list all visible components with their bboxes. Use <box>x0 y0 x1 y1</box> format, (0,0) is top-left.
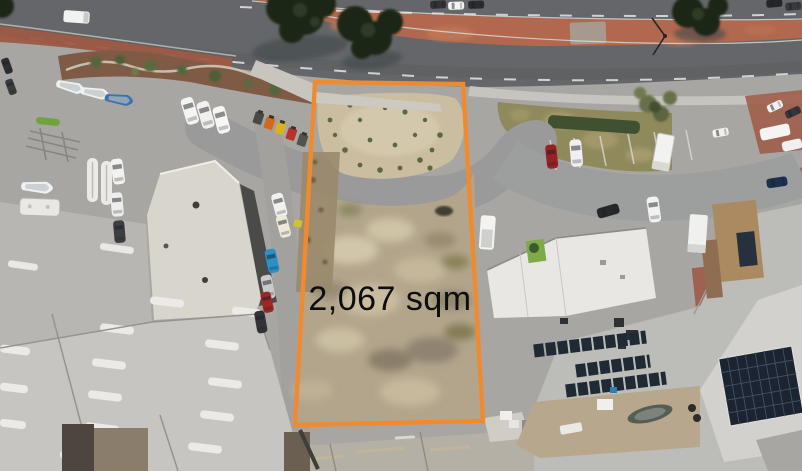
vehicle <box>430 0 446 9</box>
dark-shed <box>284 432 310 471</box>
white-truck <box>687 214 708 253</box>
area-label: 2,067 sqm <box>308 280 471 318</box>
loading-bay-gap <box>62 424 148 471</box>
vehicle <box>785 2 802 11</box>
vehicle <box>766 0 783 8</box>
aerial-photo: 2,067 sqm <box>0 0 802 471</box>
aerial-photo-canvas: 2,067 sqm <box>0 0 802 471</box>
highway-van <box>63 10 90 24</box>
solar-array <box>719 346 802 426</box>
vehicle <box>468 0 484 9</box>
vehicle <box>110 192 124 217</box>
caravan <box>19 198 60 216</box>
vehicle <box>569 139 583 167</box>
boat <box>101 161 112 205</box>
boat <box>87 158 98 202</box>
white-ute <box>479 215 496 250</box>
vehicle <box>448 1 464 10</box>
vehicle <box>113 220 126 243</box>
